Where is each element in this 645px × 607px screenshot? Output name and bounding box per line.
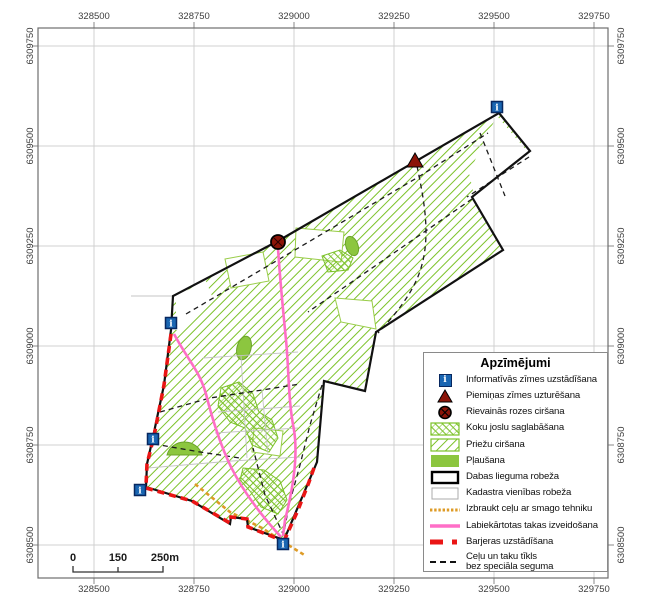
axis-labels-bottom: 328500 328750 329000 329250 329500 32975…: [78, 584, 610, 595]
scale-bar: 0 150 250m: [70, 552, 179, 572]
tick-marks-left: [32, 46, 38, 545]
info-glyph: i: [169, 320, 173, 330]
y-tick-label: 6309000: [25, 328, 36, 365]
barrier-dashes-glyph: [428, 538, 462, 546]
legend-item-label-line2: bez speciāla seguma: [466, 562, 553, 573]
heavy-route-line-icon: [424, 506, 466, 514]
crosshatch-swatch: [424, 422, 466, 436]
tick-marks-top: [94, 22, 594, 28]
info-glyph: i: [138, 487, 142, 497]
memorial-triangle-icon: [424, 389, 466, 403]
road-dashed-glyph: [428, 558, 462, 566]
legend-item-label: Ceļu un taku tīkls bez speciāla seguma: [466, 552, 553, 573]
legend-title: Apzīmējumi: [424, 353, 607, 372]
axis-labels-top: 328500 328750 329000 329250 329500 32975…: [78, 11, 610, 22]
hatch-swatch-glyph: [430, 438, 460, 452]
x-tick-label: 329500: [478, 584, 510, 595]
legend-item-label: Izbraukt ceļu ar smago tehniku: [466, 504, 592, 515]
reserve-boundary-swatch: [424, 470, 466, 485]
axis-labels-right: 6309750 6309500 6309250 6309000 6308750 …: [616, 28, 627, 564]
memorial-triangle-glyph: [437, 389, 453, 403]
y-tick-label: 6308750: [616, 427, 627, 464]
map-page: 328500 328750 329000 329250 329500 32975…: [0, 0, 645, 607]
info-sign-marker: i: [148, 434, 159, 446]
legend: Apzīmējumi i Informatīvās zīmes uzstādīš…: [423, 352, 608, 572]
x-tick-label: 329250: [378, 584, 410, 595]
legend-item-label: Koku joslu saglabāšana: [466, 423, 564, 434]
legend-item: Labiekārtotas takas izveidošana: [424, 518, 607, 534]
road-dashed-line-icon: [424, 558, 466, 566]
trail-line-icon: [424, 522, 466, 530]
legend-item: Koku joslu saglabāšana: [424, 421, 607, 437]
y-tick-label: 6309750: [25, 28, 36, 65]
x-tick-label: 328750: [178, 584, 210, 595]
axis-labels-left: 6309750 6309500 6309250 6309000 6308750 …: [25, 28, 36, 564]
scale-bar-line: [73, 566, 163, 572]
cadastral-boundary-swatch: [424, 486, 466, 501]
y-tick-label: 6308750: [25, 427, 36, 464]
legend-item: Barjeras uzstādīšana: [424, 534, 607, 550]
scale-label-start: 0: [70, 552, 76, 564]
y-tick-label: 6309500: [25, 128, 36, 165]
info-glyph: i: [281, 541, 285, 551]
legend-item: Ceļu un taku tīkls bez speciāla seguma: [424, 550, 607, 574]
meadow-swatch-glyph: [430, 454, 460, 468]
legend-item-label: Informatīvās zīmes uzstādīšana: [466, 375, 597, 386]
info-sign-marker: i: [492, 102, 503, 114]
legend-item-label: Dabas lieguma robeža: [466, 472, 559, 483]
meadow-swatch: [424, 454, 466, 468]
info-glyph: i: [439, 374, 452, 387]
tick-marks-right: [608, 46, 614, 545]
y-tick-label: 6309000: [616, 328, 627, 365]
barrier-dashes-icon: [424, 538, 466, 546]
y-tick-label: 6308500: [25, 527, 36, 564]
x-tick-label: 328500: [78, 11, 110, 22]
scale-label-mid: 150: [109, 552, 127, 564]
cadastral-boundary-glyph: [430, 486, 460, 501]
x-tick-label: 329500: [478, 11, 510, 22]
info-glyph: i: [151, 436, 155, 446]
trail-line-glyph: [428, 522, 462, 530]
crosshatch-swatch-glyph: [430, 422, 460, 436]
tick-marks-bottom: [94, 578, 594, 584]
legend-item-label: Priežu ciršana: [466, 440, 525, 451]
legend-item-label: Labiekārtotas takas izveidošana: [466, 521, 598, 532]
legend-item-label: Rievainās rozes ciršana: [466, 407, 564, 418]
rose-cut-icon: [424, 405, 466, 420]
rose-cut-glyph: [437, 405, 453, 420]
y-tick-label: 6308500: [616, 527, 627, 564]
x-tick-label: 328500: [78, 584, 110, 595]
y-tick-label: 6309750: [616, 28, 627, 65]
info-sign-marker: i: [278, 539, 289, 551]
legend-item: Kadastra vienības robeža: [424, 485, 607, 501]
legend-item: Dabas lieguma robeža: [424, 469, 607, 485]
y-tick-label: 6309250: [616, 228, 627, 265]
reserve-boundary-glyph: [430, 470, 460, 485]
heavy-route-glyph: [428, 506, 462, 514]
legend-item: i Informatīvās zīmes uzstādīšana: [424, 372, 607, 388]
info-sign-icon: i: [424, 374, 466, 387]
hatch-swatch: [424, 438, 466, 452]
x-tick-label: 329000: [278, 584, 310, 595]
legend-item: Izbraukt ceļu ar smago tehniku: [424, 502, 607, 518]
info-glyph: i: [495, 104, 499, 114]
x-tick-label: 328750: [178, 11, 210, 22]
legend-item-label: Kadastra vienības robeža: [466, 488, 571, 499]
legend-item: Rievainās rozes ciršana: [424, 404, 607, 420]
y-tick-label: 6309500: [616, 128, 627, 165]
y-tick-label: 6309250: [25, 228, 36, 265]
legend-item-label: Barjeras uzstādīšana: [466, 537, 553, 548]
legend-item-label: Pļaušana: [466, 456, 505, 467]
scale-label-end: 250m: [151, 552, 179, 564]
info-sign-marker: i: [166, 318, 177, 330]
legend-item: Piemiņas zīmes uzturēšana: [424, 388, 607, 404]
legend-item: Priežu ciršana: [424, 437, 607, 453]
x-tick-label: 329750: [578, 11, 610, 22]
rose-circle-marker: [271, 235, 285, 249]
info-sign-marker: i: [135, 485, 146, 497]
legend-item: Pļaušana: [424, 453, 607, 469]
x-tick-label: 329000: [278, 11, 310, 22]
legend-item-label: Piemiņas zīmes uzturēšana: [466, 391, 580, 402]
x-tick-label: 329250: [378, 11, 410, 22]
x-tick-label: 329750: [578, 584, 610, 595]
